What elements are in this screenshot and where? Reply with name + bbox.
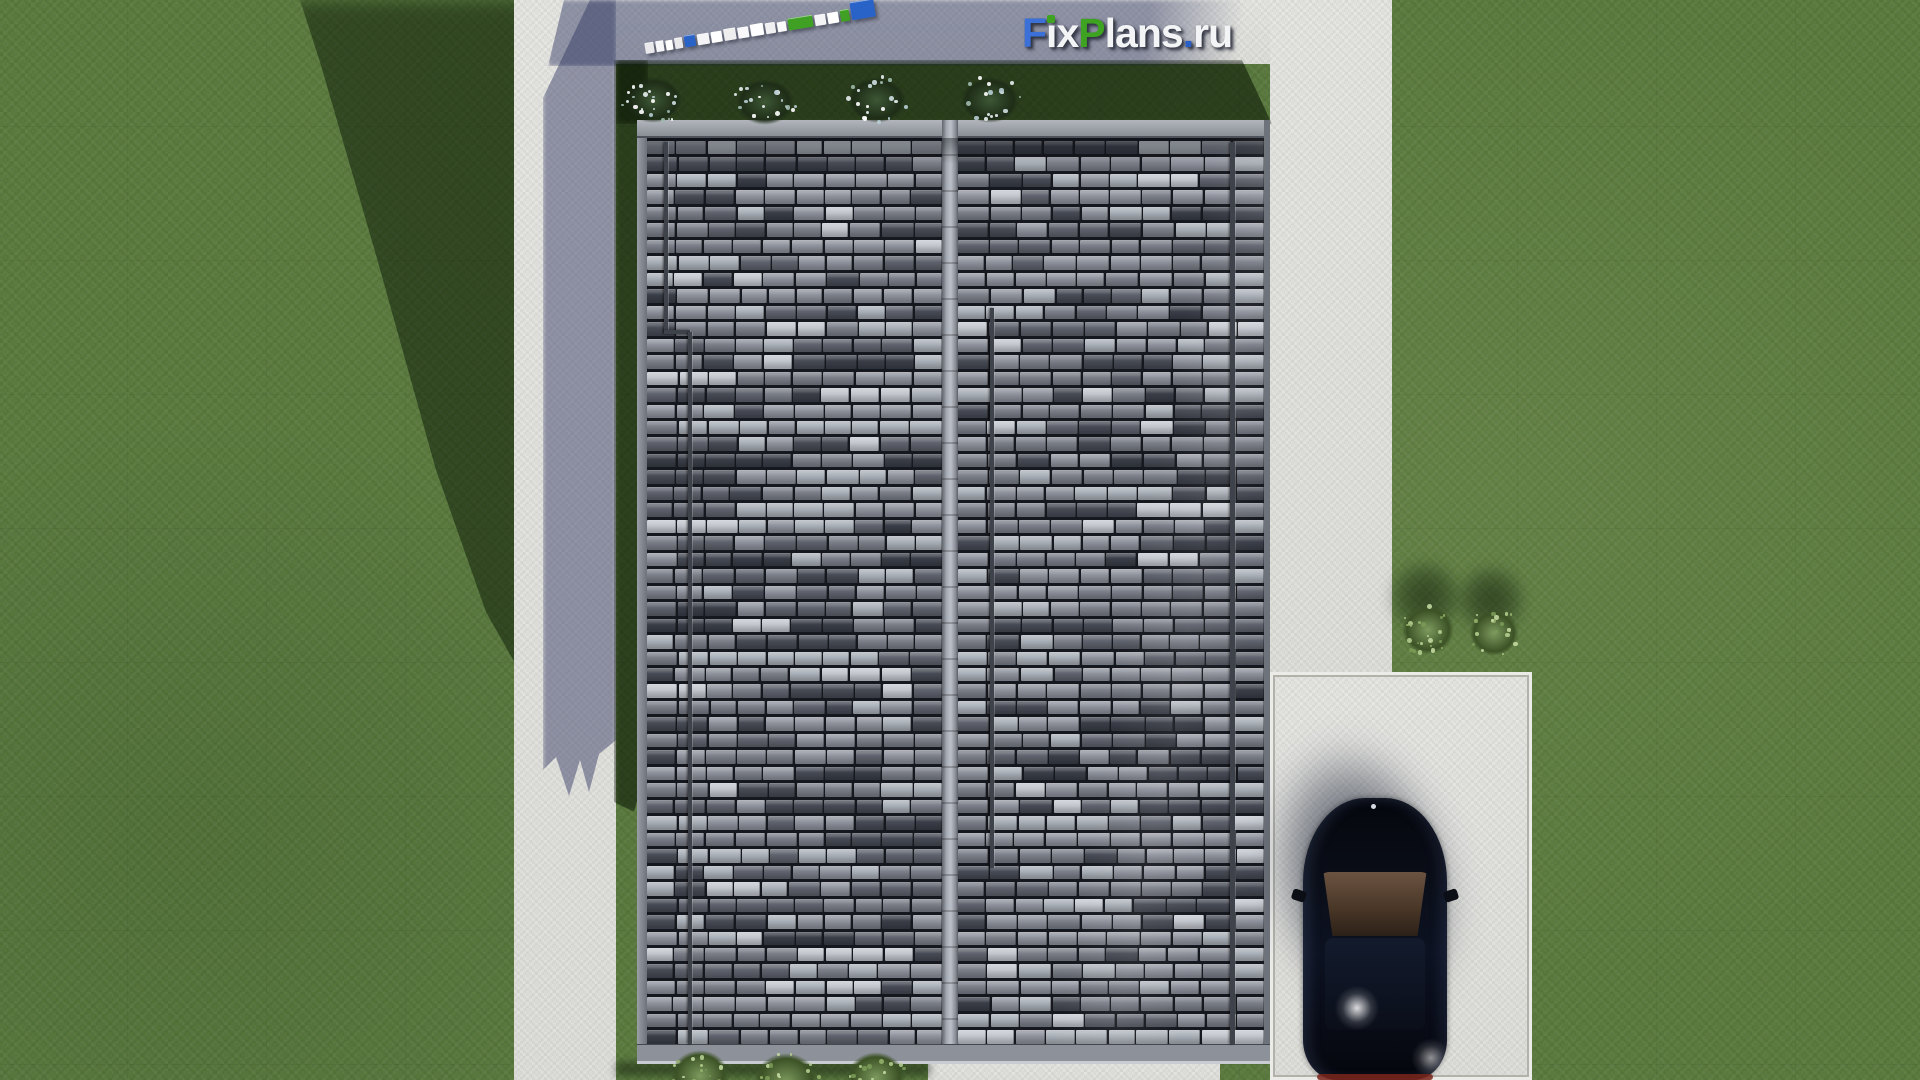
roof-tile-row <box>958 994 1264 1010</box>
roof-tile <box>1148 322 1179 335</box>
roof-tile <box>915 306 942 319</box>
roof-tile <box>852 190 880 203</box>
roof-tile <box>769 783 795 796</box>
roof-tile <box>795 652 821 665</box>
roof-tile <box>852 866 878 879</box>
roof-tile <box>958 487 985 500</box>
roof-tile <box>767 948 797 961</box>
roof-tile <box>1143 207 1170 220</box>
roof-tile <box>1173 816 1201 829</box>
roof-tile <box>1106 553 1136 566</box>
roof-tile <box>709 223 735 236</box>
roof-tile <box>1112 454 1143 467</box>
roof-tile <box>1052 849 1084 862</box>
roof-tile <box>1141 256 1171 269</box>
roof-tile <box>734 1014 759 1027</box>
roof-tile-row <box>958 385 1264 401</box>
roof-tile <box>1174 273 1205 286</box>
roof-tile <box>707 388 735 401</box>
roof-eave-bottom <box>637 1044 1270 1064</box>
roof-tile <box>1203 207 1231 220</box>
roof-tile-row <box>647 220 942 236</box>
roof-tile <box>911 553 942 566</box>
roof-tile <box>1081 717 1110 730</box>
roof-tile <box>854 256 884 269</box>
roof-tile <box>859 322 885 335</box>
roof-tile <box>1173 932 1202 945</box>
roof-tile <box>766 157 796 170</box>
roof-tile <box>1149 767 1178 780</box>
roof-tile <box>1200 174 1231 187</box>
roof-tile <box>1177 734 1203 747</box>
roof-tile <box>823 619 852 632</box>
roof-tile <box>1231 899 1264 912</box>
roof-tile <box>914 783 942 796</box>
roof-tile <box>1051 602 1079 615</box>
roof-tile <box>1080 454 1110 467</box>
roof-pipe-4 <box>1230 142 1235 1044</box>
roof-tile <box>796 981 825 994</box>
roof-tile <box>886 157 912 170</box>
roof-tile <box>794 207 824 220</box>
roof-tile <box>1020 866 1052 879</box>
roof-tile <box>647 602 676 615</box>
roof-tile <box>1141 421 1173 434</box>
roof-tile <box>1109 1030 1135 1043</box>
roof-tile <box>958 174 989 187</box>
roof-tile <box>1111 800 1138 813</box>
roof-tile <box>990 372 1019 385</box>
roof-tile <box>1234 240 1264 253</box>
roof-tile <box>736 833 766 846</box>
roof-tile <box>647 866 674 879</box>
roof-tile <box>1083 635 1112 648</box>
roof-tile <box>911 437 942 450</box>
roof-tile <box>1016 273 1046 286</box>
roof-tile <box>882 915 911 928</box>
roof-tile <box>768 652 794 665</box>
roof-tile <box>1232 207 1264 220</box>
roof-tile <box>825 915 852 928</box>
roof-tile <box>647 635 673 648</box>
roof-tile <box>1172 437 1203 450</box>
roof-tile <box>1143 372 1171 385</box>
roof-tile <box>853 405 880 418</box>
watermark-i-dot <box>1047 15 1055 23</box>
roof-tile <box>1106 273 1139 286</box>
roof-tile <box>1233 289 1264 302</box>
roof-tile <box>1237 1014 1264 1027</box>
roof-tile <box>827 256 853 269</box>
roof-tile <box>679 816 707 829</box>
roof-tile-row <box>958 253 1264 269</box>
roof-tile <box>825 421 851 434</box>
roof-tile <box>915 767 942 780</box>
roof-tile <box>1021 668 1053 681</box>
roof-tile <box>765 536 795 549</box>
roof-tile-row <box>958 434 1264 450</box>
roof-tile <box>647 240 675 253</box>
car-taillight-strip <box>1317 1074 1433 1080</box>
roof-tile <box>704 273 732 286</box>
roof-tile <box>1203 964 1231 977</box>
roof-tile <box>706 190 734 203</box>
roof-tile <box>709 635 736 648</box>
roof-tile <box>881 783 913 796</box>
roof-tile-row <box>958 649 1264 665</box>
roof-tile <box>1235 355 1264 368</box>
roof-tile <box>958 866 989 879</box>
roof-tile <box>1023 174 1051 187</box>
watermark-letter: F <box>1022 10 1046 57</box>
roof-tile <box>1079 882 1109 895</box>
roof-tile <box>679 701 710 714</box>
roof-tile <box>768 816 794 829</box>
roof-tile <box>765 207 793 220</box>
roof-tile <box>647 454 676 467</box>
roof-tile <box>1146 1014 1177 1027</box>
roof-tile <box>738 372 764 385</box>
watermark-letter: . <box>1183 10 1193 57</box>
roof-tile <box>1204 454 1233 467</box>
roof-tile <box>852 833 881 846</box>
roof-tile <box>1235 339 1264 352</box>
watermark-letter: x <box>1056 10 1078 57</box>
roof-tile <box>913 915 942 928</box>
roof-tile <box>647 833 675 846</box>
roof-tile <box>859 569 884 582</box>
roof-tile-row <box>958 286 1264 302</box>
roof-tile <box>793 866 819 879</box>
roof-tile-row <box>958 698 1264 714</box>
roof-tile <box>992 536 1019 549</box>
roof-tile <box>647 882 674 895</box>
roof-tile <box>1202 750 1232 763</box>
roof-pipe-3 <box>990 308 994 868</box>
roof-tile <box>1047 437 1077 450</box>
roof-tile <box>706 668 731 681</box>
roof-tile <box>1200 635 1232 648</box>
roof-tile <box>708 141 736 154</box>
roof-tile-row <box>958 270 1264 286</box>
roof-tile <box>1235 405 1264 418</box>
roof-tile <box>1177 454 1203 467</box>
roof-tile <box>705 536 733 549</box>
roof-tile <box>1075 141 1105 154</box>
roof-tile <box>888 635 914 648</box>
roof-tile <box>882 833 912 846</box>
roof-tile <box>792 240 823 253</box>
roof-tile <box>886 322 911 335</box>
roof-tile <box>912 388 942 401</box>
roof-tile <box>1177 866 1204 879</box>
roof-tile <box>911 866 942 879</box>
roof-tile <box>739 783 768 796</box>
roof-tile <box>704 355 733 368</box>
roof-tile <box>1173 256 1200 269</box>
roof-tile <box>826 174 855 187</box>
roof-tile-row <box>958 418 1264 434</box>
roof-tile <box>991 717 1018 730</box>
roof-tile <box>913 602 942 615</box>
roof-tile <box>1173 487 1205 500</box>
roof-tile <box>1203 503 1233 516</box>
roof-tile <box>709 437 737 450</box>
roof-tile <box>1205 240 1233 253</box>
roof-tile <box>890 1030 916 1043</box>
roof-tile <box>1021 635 1053 648</box>
roof-tile <box>911 190 942 203</box>
roof-tile-row <box>958 978 1264 994</box>
roof-tile <box>765 190 795 203</box>
roof-tile <box>958 734 989 747</box>
roof-tile <box>885 503 915 516</box>
roof-tile <box>1017 421 1046 434</box>
roof-tile <box>1117 322 1147 335</box>
roof-tile <box>1051 454 1079 467</box>
roof-tile <box>916 619 942 632</box>
roof-tile <box>1235 619 1264 632</box>
roof-tile <box>990 240 1018 253</box>
roof-tile <box>1106 141 1137 154</box>
roof-tile-row <box>958 731 1264 747</box>
roof-tile <box>915 470 942 483</box>
watermark-letter: r <box>1193 10 1208 57</box>
roof-tile <box>1114 355 1142 368</box>
roof-tile-row <box>958 879 1264 895</box>
roof-tile-row <box>958 764 1264 780</box>
roof-tile <box>850 223 880 236</box>
roof-tile <box>914 833 942 846</box>
roof-tile <box>1236 833 1264 846</box>
roof-tile <box>1113 619 1143 632</box>
roof-tile <box>1022 207 1051 220</box>
roof-tile <box>792 1014 820 1027</box>
roof-tile <box>1174 915 1204 928</box>
roof-tile-row <box>647 154 942 170</box>
roof-tile <box>1234 1030 1264 1043</box>
roof-tile <box>1202 1030 1233 1043</box>
roof-tile <box>958 717 989 730</box>
roof-tile <box>793 454 821 467</box>
roof-tile <box>855 932 882 945</box>
roof-tile <box>912 141 942 154</box>
roof-tile <box>647 141 675 154</box>
roof-tile <box>958 652 987 665</box>
roof-tile <box>1020 536 1052 549</box>
roof-tile <box>1078 833 1110 846</box>
roof-tile <box>889 273 915 286</box>
roof-tile-row <box>958 599 1264 615</box>
roof-tile <box>1013 256 1043 269</box>
roof-tile <box>822 668 849 681</box>
roof-tile <box>853 454 884 467</box>
roof-tile <box>1055 767 1086 780</box>
roof-tile <box>730 487 761 500</box>
roof-tile <box>883 1014 911 1027</box>
roof-tile <box>958 355 989 368</box>
roof-tile <box>1141 536 1173 549</box>
roof-tile <box>1178 339 1204 352</box>
roof-tile <box>958 833 985 846</box>
roof-tile <box>986 256 1012 269</box>
roof-tile <box>958 948 987 961</box>
roof-tile <box>1234 503 1264 516</box>
roof-tile <box>1203 355 1233 368</box>
roof-tile <box>795 750 826 763</box>
roof-tile <box>647 487 673 500</box>
roof-tile <box>765 372 791 385</box>
roof-tile <box>679 157 709 170</box>
roof-tile <box>882 339 912 352</box>
roof-tile-row <box>958 813 1264 829</box>
roof-tile <box>742 289 768 302</box>
roof-tile <box>958 223 988 236</box>
roof-tile <box>1047 503 1076 516</box>
roof-tile <box>767 470 795 483</box>
roof-tile <box>647 372 678 385</box>
roof-tile <box>858 306 885 319</box>
roof-tile <box>1142 289 1169 302</box>
roof-tile <box>797 289 823 302</box>
roof-tile <box>1202 256 1231 269</box>
roof-tile <box>1202 141 1231 154</box>
roof-tile <box>1204 569 1231 582</box>
roof-tile <box>647 569 673 582</box>
roof-tile <box>851 1014 882 1027</box>
roof-tile <box>991 289 1022 302</box>
roof-tile-row <box>958 846 1264 862</box>
scale-bar-segment <box>737 26 750 39</box>
roof-tile <box>708 174 736 187</box>
roof-tile <box>914 849 942 862</box>
roof-tile <box>958 668 986 681</box>
roof-tile <box>1171 981 1199 994</box>
roof-tile <box>1077 306 1106 319</box>
roof-tile <box>1170 306 1201 319</box>
roof-tile <box>860 470 886 483</box>
roof-tile <box>737 141 765 154</box>
roof-tile <box>882 141 910 154</box>
roof-tile <box>1105 899 1132 912</box>
roof-tile <box>881 437 910 450</box>
roof-tile <box>1046 833 1077 846</box>
roof-tile <box>767 223 793 236</box>
roof-tile <box>987 273 1014 286</box>
roof-tile <box>1181 322 1207 335</box>
roof-tile <box>736 915 766 928</box>
roof-tile <box>884 734 914 747</box>
watermark-logo: FixPlans.ru <box>1022 10 1232 57</box>
roof-tile <box>958 569 987 582</box>
roof-tile <box>795 816 824 829</box>
roof-tile <box>1138 306 1168 319</box>
roof-tile <box>827 470 859 483</box>
roof-tile <box>1113 405 1144 418</box>
roof-tile-row <box>958 171 1264 187</box>
roof-tile <box>733 619 761 632</box>
roof-tile <box>991 355 1019 368</box>
scale-bar-segment <box>674 37 684 49</box>
roof-tile <box>958 240 989 253</box>
roof-tile <box>1107 306 1137 319</box>
roof-tile <box>825 783 852 796</box>
roof-tile <box>1173 355 1202 368</box>
roof-tile <box>991 734 1022 747</box>
roof-tile <box>1112 602 1141 615</box>
roof-tile <box>826 207 853 220</box>
roof-tile <box>1173 586 1203 599</box>
roof-tile <box>915 355 942 368</box>
roof-tile <box>990 866 1019 879</box>
roof-tile <box>704 586 732 599</box>
roof-tile <box>1136 1030 1168 1043</box>
roof-tile <box>739 717 765 730</box>
roof-tile <box>647 701 677 714</box>
car-glass-flare-2 <box>1403 1030 1459 1080</box>
roof-tile <box>1116 964 1144 977</box>
roof-tile <box>647 997 672 1010</box>
roof-tile <box>854 207 883 220</box>
roof-tile <box>1017 652 1047 665</box>
car-antenna-dot <box>1371 804 1376 809</box>
roof-tile <box>912 1014 942 1027</box>
roof-tile <box>824 503 854 516</box>
roof-tile <box>1142 602 1170 615</box>
roof-tile <box>958 339 988 352</box>
roof-tile-row <box>647 303 942 319</box>
roof-tile <box>1083 372 1111 385</box>
roof-tile <box>764 355 792 368</box>
roof-tile <box>647 470 675 483</box>
roof-fascia-right <box>1264 120 1270 1064</box>
roof-tile <box>885 520 911 533</box>
roof-tile <box>1020 470 1050 483</box>
roof-tile <box>987 1030 1014 1043</box>
roof-tile <box>1054 388 1082 401</box>
roof-tile <box>1019 586 1046 599</box>
roof-tile <box>1052 240 1079 253</box>
roof-tile <box>1144 454 1175 467</box>
roof-tile <box>675 190 704 203</box>
roof-tile <box>852 421 878 434</box>
roof-tile <box>1117 1014 1144 1027</box>
roof-tile <box>958 915 985 928</box>
roof-tile <box>855 684 881 697</box>
roof-tile <box>1023 339 1052 352</box>
roof-tile <box>708 322 735 335</box>
roof-tile <box>827 849 855 862</box>
roof-tile <box>991 586 1017 599</box>
roof-tile-row <box>958 402 1264 418</box>
roof-tile <box>789 882 820 895</box>
roof-tile <box>858 635 887 648</box>
roof-tile <box>647 503 672 516</box>
roof-tile <box>647 849 677 862</box>
roof-tile <box>1140 273 1172 286</box>
roof-tile <box>990 767 1023 780</box>
roof-tile <box>647 932 677 945</box>
roof-tile <box>829 586 855 599</box>
scale-bar-segment <box>655 40 665 52</box>
roof-tile <box>793 372 822 385</box>
roof-tile <box>958 405 988 418</box>
roof-tile <box>913 454 942 467</box>
roof-tile <box>1235 372 1264 385</box>
roof-tile <box>674 273 702 286</box>
roof-tile <box>958 619 990 632</box>
roof-tile <box>915 569 942 582</box>
